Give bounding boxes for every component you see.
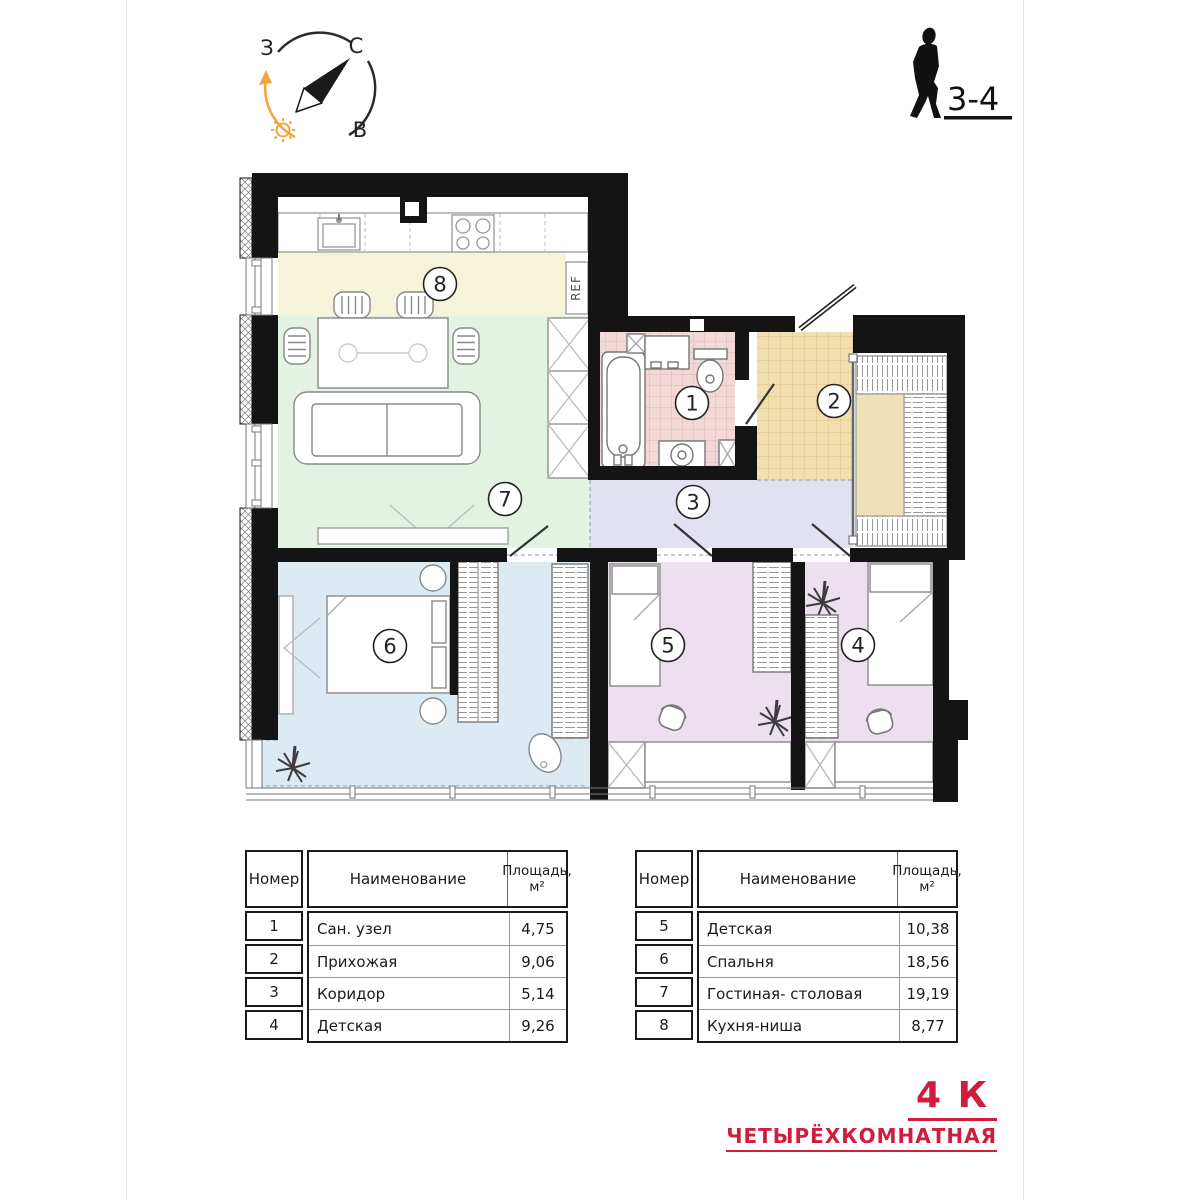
apartment-type-label: ЧЕТЫРЁХКОМНАТНАЯ xyxy=(726,1126,997,1152)
desk xyxy=(608,742,791,788)
svg-text:4: 4 xyxy=(851,634,864,658)
table-row-number: 4 xyxy=(245,1010,303,1040)
person-icon xyxy=(910,26,941,118)
table-row: Спальня 18,56 xyxy=(699,945,956,977)
room-7-badge: 7 xyxy=(489,483,522,516)
bathtub-icon xyxy=(602,352,645,468)
table-row-number: 5 xyxy=(635,911,693,941)
table-row-number: 6 xyxy=(635,944,693,974)
entrance-door xyxy=(800,286,855,329)
room-1-badge: 1 xyxy=(676,387,709,420)
table-row: Детская 9,26 xyxy=(309,1009,566,1041)
table1-header-area: Площадь, м² xyxy=(508,852,566,906)
room-3-floor xyxy=(590,480,853,548)
table-row: Гостиная- столовая 19,19 xyxy=(699,977,956,1009)
washing-machine-icon xyxy=(659,441,705,468)
svg-text:7: 7 xyxy=(498,488,511,512)
area-table-1: Номер 1 2 3 4 Наименование Площадь, м² С… xyxy=(245,850,568,1043)
table-row: Сан. узел 4,75 xyxy=(309,913,566,945)
compass-east-label: В xyxy=(353,118,367,142)
floors-label: 3-4 xyxy=(947,80,999,118)
room-8-badge: 8 xyxy=(424,268,457,301)
compass-icon: З С В xyxy=(259,33,375,142)
table-row: Детская 10,38 xyxy=(699,913,956,945)
room-3-badge: 3 xyxy=(677,486,710,519)
wardrobe xyxy=(805,615,838,738)
living-wardrobe xyxy=(548,318,590,478)
table-row-number: 2 xyxy=(245,944,303,974)
area-table-2: Номер 5 6 7 8 Наименование Площадь, м² Д… xyxy=(635,850,958,1043)
room4-furniture xyxy=(805,562,933,788)
compass-north-label: С xyxy=(349,34,364,58)
stove-icon xyxy=(452,215,494,252)
table-row-number: 1 xyxy=(245,911,303,941)
svg-text:5: 5 xyxy=(661,634,674,658)
table-row-number: 8 xyxy=(635,1010,693,1040)
svg-text:2: 2 xyxy=(827,390,840,414)
window-icon xyxy=(246,740,262,788)
sink-icon xyxy=(318,214,360,250)
sun-path-arc xyxy=(265,79,295,137)
nightstand xyxy=(420,698,446,724)
floor-plan-sheet: З С В 3-4 xyxy=(0,0,1200,1200)
room-6-badge: 6 xyxy=(374,630,407,663)
table-row: Кухня-ниша 8,77 xyxy=(699,1009,956,1041)
svg-text:1: 1 xyxy=(685,392,698,416)
svg-text:6: 6 xyxy=(383,635,396,659)
table2-header-number: Номер xyxy=(635,850,693,908)
compass-west-label: З xyxy=(260,36,273,60)
desk xyxy=(805,742,933,788)
table2-header-name: Наименование xyxy=(699,852,898,906)
table-row-number: 3 xyxy=(245,977,303,1007)
sofa xyxy=(294,392,480,464)
nightstand xyxy=(420,565,446,591)
table-row: Прихожая 9,06 xyxy=(309,945,566,977)
window-icon xyxy=(246,258,272,315)
table-row: Коридор 5,14 xyxy=(309,977,566,1009)
floor-plan: З С В 3-4 xyxy=(0,0,1200,1200)
table1-header-name: Наименование xyxy=(309,852,508,906)
ref-label: REF xyxy=(569,275,583,301)
table-row-number: 7 xyxy=(635,977,693,1007)
bed-icon xyxy=(610,564,660,686)
svg-text:8: 8 xyxy=(433,273,446,297)
apartment-code: 4 К xyxy=(726,1078,997,1121)
room-4-badge: 4 xyxy=(842,629,875,662)
fridge-niche: REF xyxy=(566,262,588,314)
table2-header-area: Площадь, м² xyxy=(898,852,956,906)
closet-fittings xyxy=(856,356,947,546)
room-2-badge: 2 xyxy=(818,385,851,418)
bed-icon xyxy=(868,562,933,685)
apartment-title: 4 К ЧЕТЫРЁХКОМНАТНАЯ xyxy=(726,1078,997,1152)
compass-needle xyxy=(296,58,350,112)
table1-header-number: Номер xyxy=(245,850,303,908)
svg-text:3: 3 xyxy=(686,491,699,515)
room-5-badge: 5 xyxy=(652,629,685,662)
floors-badge: 3-4 xyxy=(910,26,1012,119)
window-icon xyxy=(246,424,272,508)
wardrobe xyxy=(753,562,791,672)
